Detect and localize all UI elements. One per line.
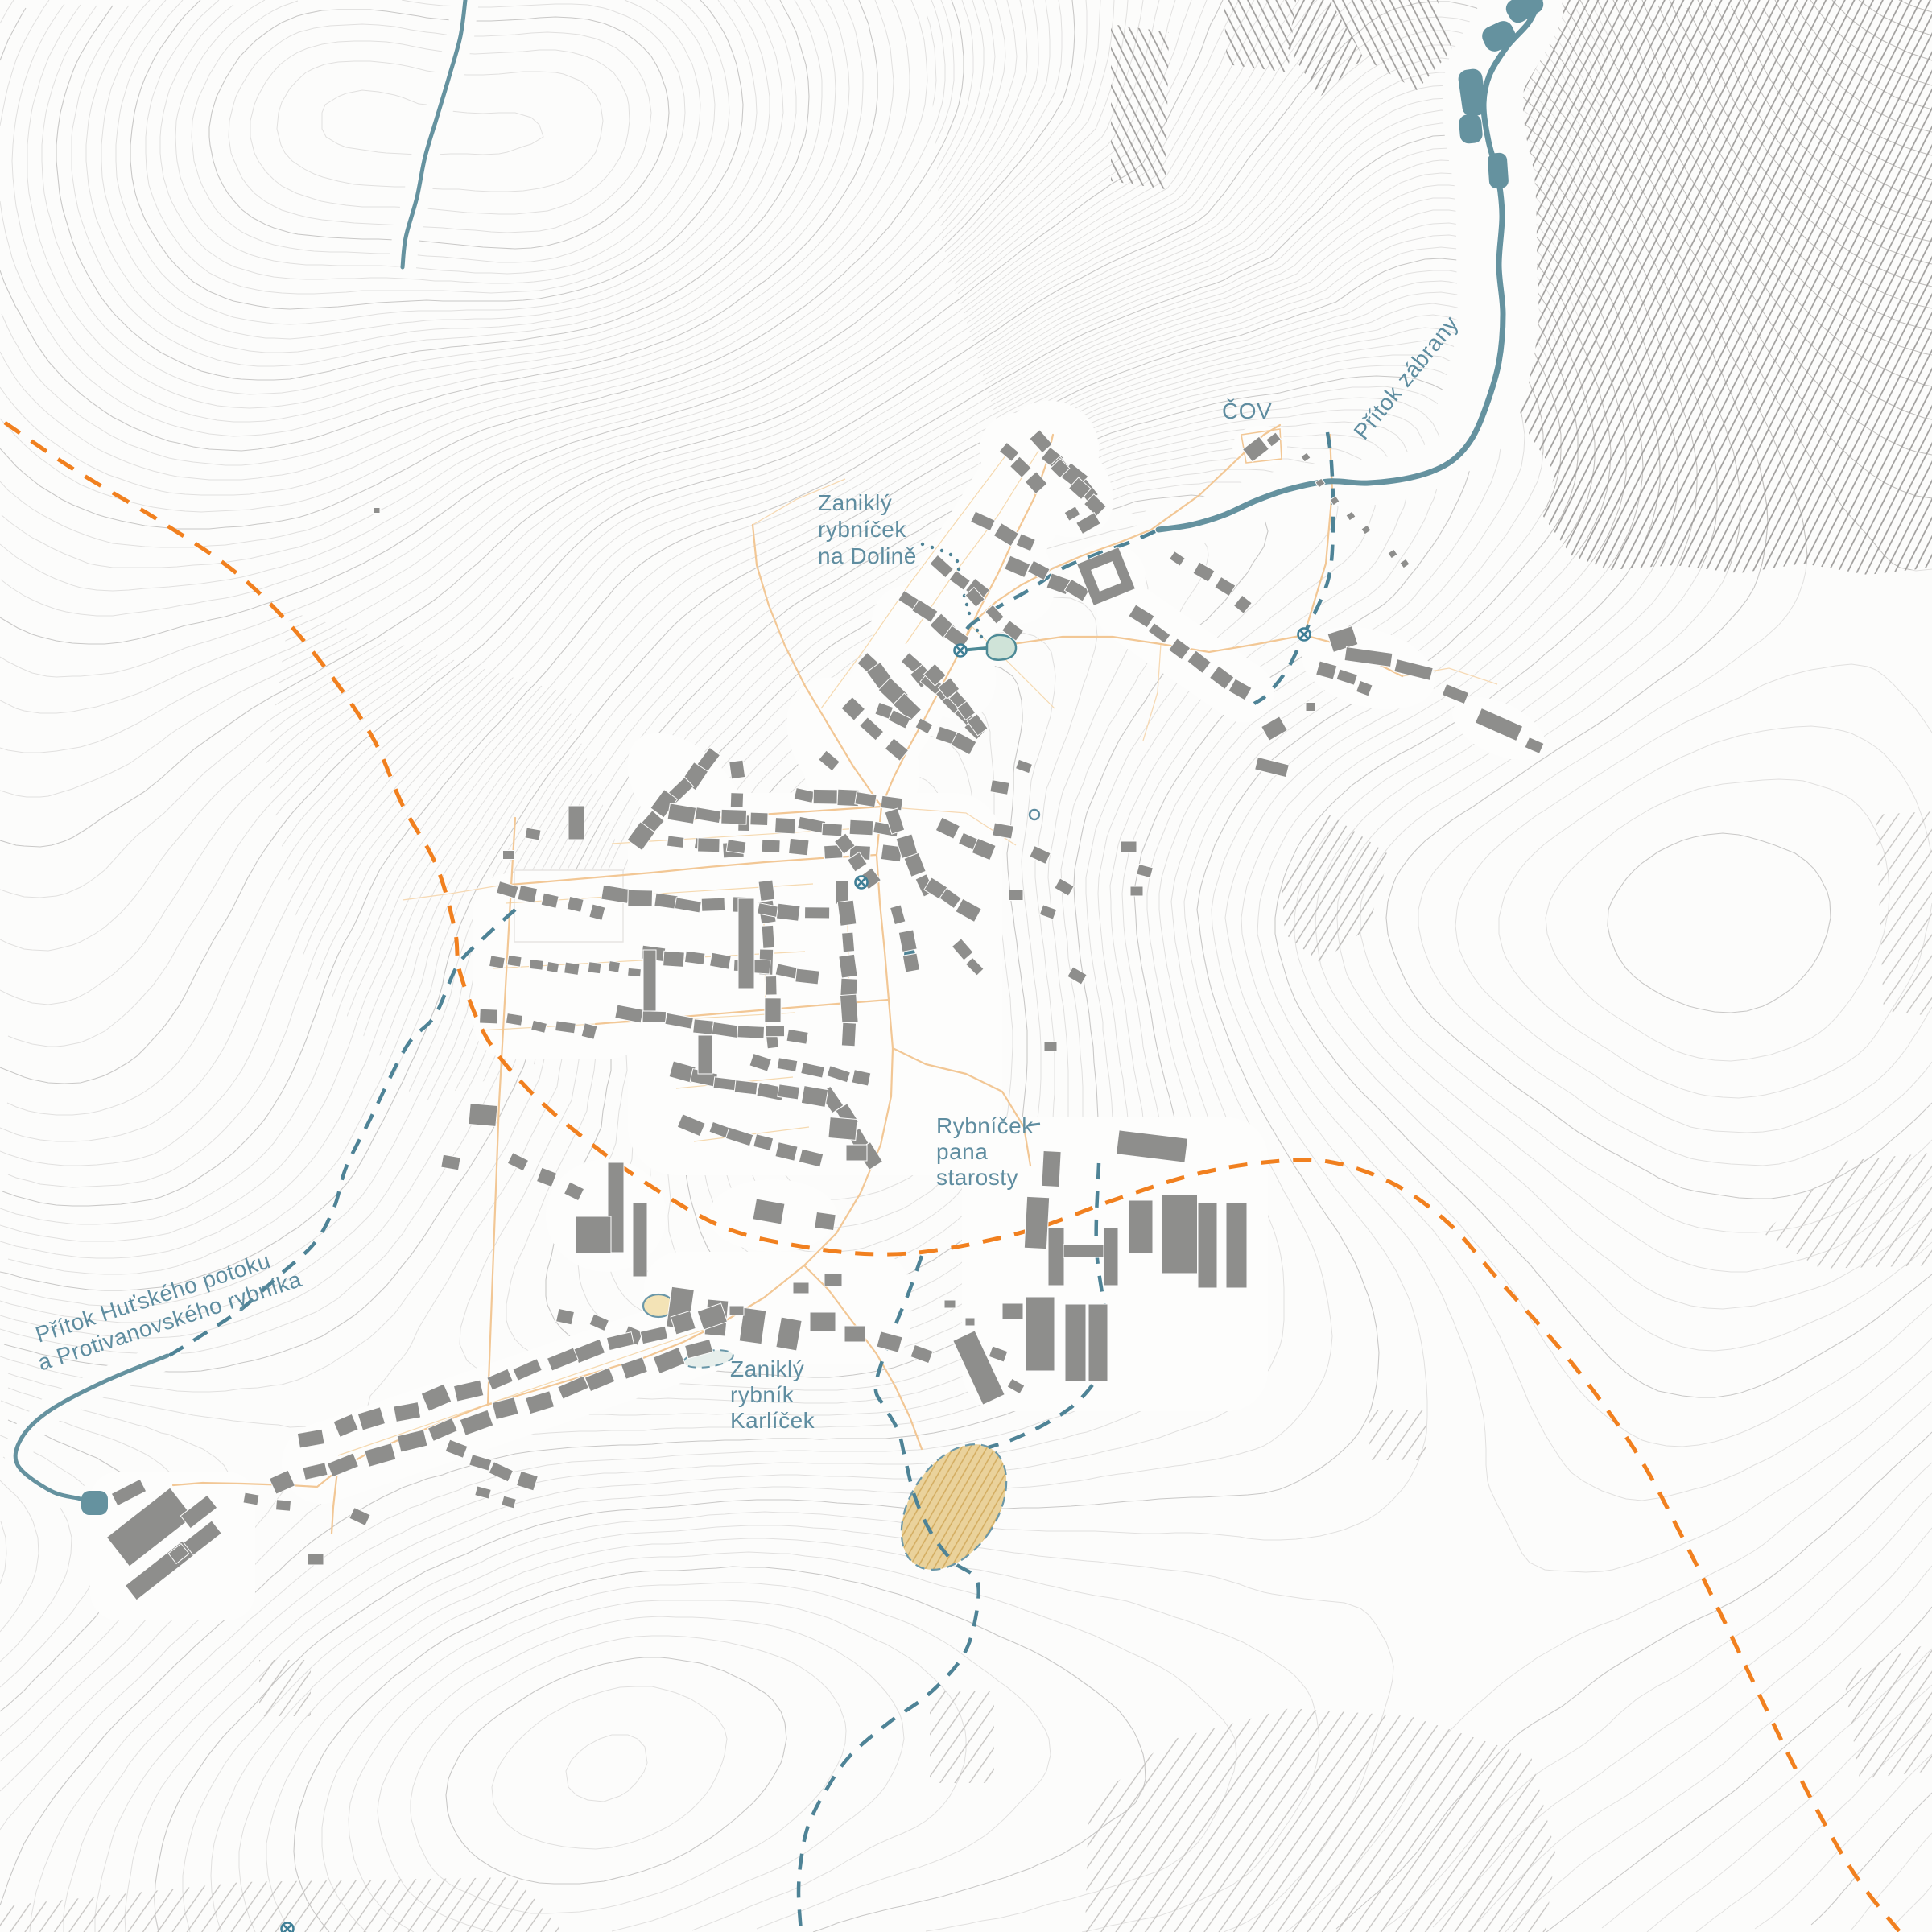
- svg-text:Zaniklý: Zaniklý: [730, 1356, 804, 1381]
- svg-text:rybník: rybník: [730, 1382, 795, 1407]
- svg-text:na Dolině: na Dolině: [818, 543, 917, 568]
- svg-text:Karlíček: Karlíček: [730, 1408, 815, 1433]
- svg-text:ČOV: ČOV: [1222, 398, 1272, 423]
- svg-text:starosty: starosty: [936, 1165, 1018, 1190]
- svg-text:Zaniklý: Zaniklý: [818, 490, 892, 515]
- svg-text:pana: pana: [936, 1139, 988, 1164]
- svg-text:Rybníček: Rybníček: [936, 1113, 1034, 1138]
- svg-text:rybníček: rybníček: [818, 517, 906, 542]
